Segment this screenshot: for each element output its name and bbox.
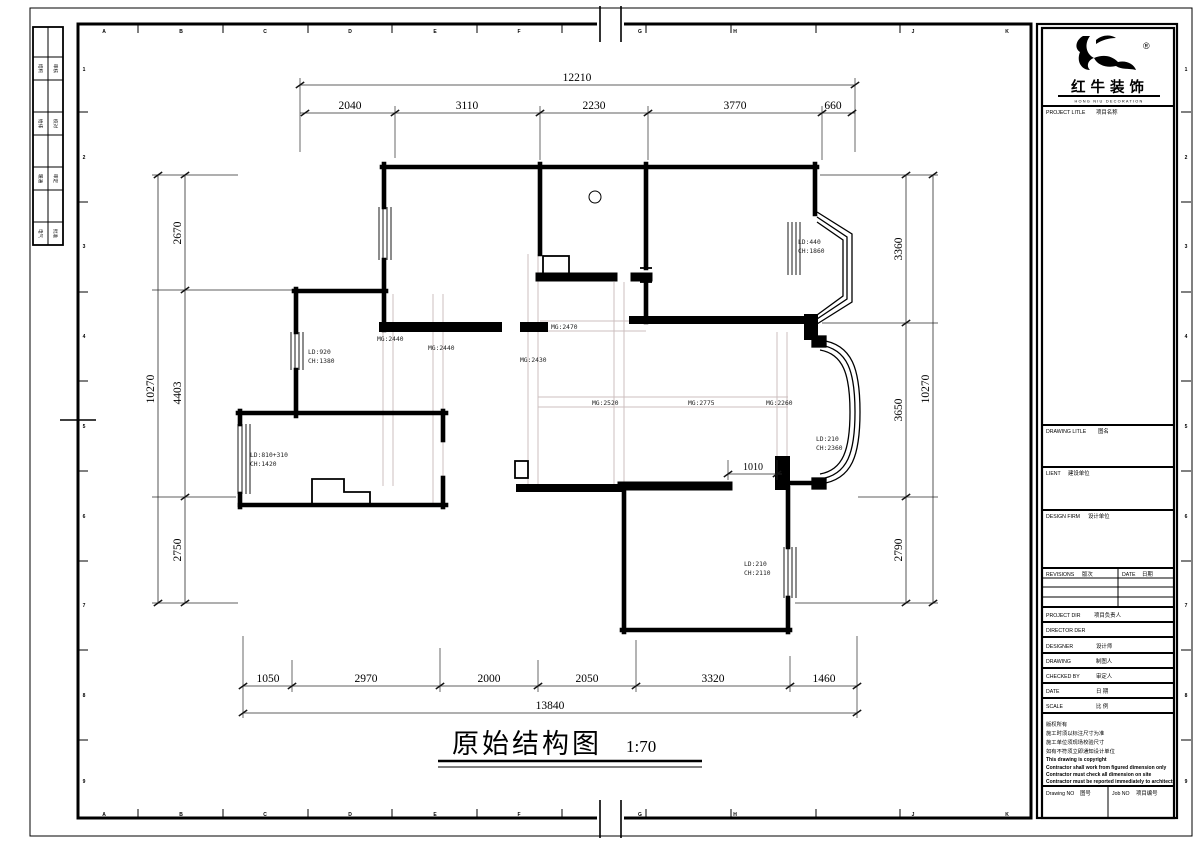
field-job-no-en: Job NO — [1112, 791, 1130, 797]
signoff-label: 结构 — [37, 64, 44, 74]
opening-label-ld: LD:440 — [798, 239, 821, 246]
dim-bottom-seg: 2050 — [576, 673, 599, 685]
dim-left-overall: 10270 — [145, 374, 157, 403]
dim-left-seg: 2750 — [172, 538, 184, 561]
dim-top-seg: 3770 — [724, 100, 747, 112]
dim-right-seg: 3650 — [893, 398, 905, 421]
signoff-label: 给排 — [37, 119, 44, 129]
beam-label: MG:2440 — [428, 345, 455, 352]
field-drawing-title-cn: 图名 — [1098, 427, 1109, 435]
beam-label: MG:2470 — [551, 324, 578, 331]
field-designer-cn: 设计师 — [1096, 642, 1113, 650]
dim-top-seg: 3110 — [456, 100, 479, 112]
grid-number-left: 7 — [83, 603, 86, 609]
field-client-en: LIENT — [1046, 471, 1062, 477]
dim-top-seg: 2040 — [339, 100, 362, 112]
grid-letter-bottom: B — [179, 812, 183, 818]
beam-label: MG:2520 — [592, 400, 619, 407]
field-design-firm-en: DESIGN FIRM — [1046, 514, 1080, 520]
field-date-col-cn: 日期 — [1142, 571, 1153, 578]
beam-label: MG:2260 — [766, 400, 793, 407]
field-project-title-cn: 项目名称 — [1096, 108, 1118, 116]
grid-letter-top: C — [263, 29, 267, 35]
field-project-title-en: PROJECT LITLE — [1046, 110, 1086, 116]
field-drawing-by-en: DRAWING — [1046, 659, 1071, 665]
dim-bottom-seg: 2970 — [355, 673, 378, 685]
opening-label-ch: CH:2360 — [816, 445, 843, 452]
opening-label-ld: LD:210 — [744, 561, 767, 568]
dim-bottom-seg: 1460 — [813, 673, 836, 685]
grid-letter-top: K — [1005, 29, 1009, 35]
opening-label-ld: LD:920 — [308, 349, 331, 356]
grid-letter-top: H — [733, 29, 737, 35]
registered-mark: ® — [1143, 41, 1150, 51]
grid-letter-bottom: K — [1005, 812, 1009, 818]
signoff-label: 校对 — [52, 119, 59, 129]
grid-letter-top: B — [179, 29, 183, 35]
field-date-en: DATE — [1046, 689, 1060, 695]
grid-letter-top: D — [348, 29, 352, 35]
dim-top-overall: 12210 — [563, 72, 592, 84]
grid-number-left: 8 — [83, 693, 86, 699]
dim-right-seg: 2790 — [893, 538, 905, 561]
dim-top-seg: 2230 — [583, 100, 606, 112]
opening-label-ch: CH:1420 — [250, 461, 277, 468]
field-client-cn: 建设单位 — [1068, 469, 1090, 477]
field-checked-by-cn: 审定人 — [1096, 672, 1113, 680]
field-drawing-no-en: Drawing NO — [1046, 791, 1074, 797]
note-line: 版权所有 — [1046, 720, 1067, 728]
grid-letter-top: J — [912, 29, 915, 35]
grid-number-right: 4 — [1185, 334, 1188, 340]
beam-label: MG:2430 — [520, 357, 547, 364]
note-line: Contractor shall work from figured dimen… — [1046, 765, 1167, 771]
paper — [0, 0, 1200, 844]
grid-letter-bottom: H — [733, 812, 737, 818]
opening-label-ch: CH:1380 — [308, 358, 335, 365]
dim-left-seg: 4403 — [172, 381, 184, 404]
grid-letter-top: F — [517, 29, 520, 35]
grid-number-left: 3 — [83, 244, 86, 250]
signoff-label: 电气 — [38, 229, 44, 239]
grid-number-right: 5 — [1185, 424, 1188, 430]
dim-top-seg: 660 — [824, 100, 842, 112]
grid-number-left: 6 — [83, 514, 86, 520]
dim-bottom-seg: 3320 — [702, 673, 725, 685]
field-drawing-title-en: DRAWING LITLE — [1046, 429, 1087, 435]
grid-letter-bottom: J — [912, 812, 915, 818]
grid-number-right: 1 — [1185, 67, 1188, 73]
note-line: 施工时须以标注尺寸为准 — [1046, 729, 1105, 737]
field-job-no-cn: 项目编号 — [1136, 789, 1158, 797]
dim-opening-1010: 1010 — [743, 462, 763, 473]
dim-bottom-seg: 1050 — [257, 673, 280, 685]
signoff-label: 批准 — [52, 229, 59, 239]
grid-number-right: 9 — [1185, 779, 1188, 785]
field-scale-en: SCALE — [1046, 704, 1064, 710]
grid-number-right: 6 — [1185, 514, 1188, 520]
note-line: 施工单位须现场校验尺寸 — [1046, 738, 1105, 746]
signoff-label: 审定 — [52, 174, 59, 184]
field-director-en: DIRECTOR DER — [1046, 628, 1086, 634]
note-line: 如有不符须立即通知设计单位 — [1046, 747, 1116, 755]
grid-number-left: 2 — [83, 155, 86, 161]
note-line: Contractor must be reported immediately … — [1046, 779, 1175, 785]
grid-number-right: 3 — [1185, 244, 1188, 250]
opening-label-ld: LD:810+310 — [250, 452, 288, 459]
note-line: Contractor must check all dimension on s… — [1046, 772, 1152, 778]
grid-number-right: 2 — [1185, 155, 1188, 161]
grid-letter-bottom: C — [263, 812, 267, 818]
dim-bottom-overall: 13840 — [536, 700, 565, 712]
field-project-dir-en: PROJECT DIR — [1046, 613, 1081, 619]
drawing-scale-text: 1:70 — [626, 737, 656, 756]
field-checked-by-en: CHECKED BY — [1046, 674, 1080, 680]
beam-label: MG:2440 — [377, 336, 404, 343]
field-drawing-by-cn: 制图人 — [1096, 657, 1113, 665]
brand-subtitle: HONG NIU DECORATION — [1075, 99, 1144, 104]
grid-number-left: 5 — [83, 424, 86, 430]
field-design-firm-cn: 设计单位 — [1088, 512, 1110, 520]
grid-letter-top: A — [102, 29, 106, 35]
field-revisions-en: REVISIONS — [1046, 572, 1075, 578]
grid-number-left: 9 — [83, 779, 86, 785]
opening-label-ld: LD:210 — [816, 436, 839, 443]
grid-letter-bottom: D — [348, 812, 352, 818]
field-scale-cn: 比 例 — [1096, 702, 1108, 710]
field-date-col-en: DATE — [1122, 572, 1136, 578]
field-project-dir-cn: 项目负责人 — [1094, 611, 1122, 619]
grid-letter-top: G — [638, 29, 642, 35]
dim-right-overall: 10270 — [920, 374, 932, 403]
drawing-title-text: 原始结构图 — [452, 729, 602, 759]
field-revisions-cn: 版次 — [1082, 570, 1093, 578]
signoff-label: 暖通 — [37, 174, 44, 184]
field-designer-en: DESIGNER — [1046, 644, 1073, 650]
opening-label-ch: CH:2110 — [744, 570, 771, 577]
grid-number-right: 7 — [1185, 603, 1188, 609]
signoff-label: 审核 — [52, 64, 59, 74]
drawing-sheet: A B C D E F G H J K A B C D E F G H J K … — [0, 0, 1200, 844]
note-line: This drawing is copyright — [1046, 757, 1107, 763]
opening-label-ch: CH:1860 — [798, 248, 825, 255]
grid-number-left: 4 — [83, 334, 86, 340]
dim-left-seg: 2670 — [172, 221, 184, 244]
dim-right-seg: 3360 — [893, 237, 905, 260]
grid-number-left: 1 — [83, 67, 86, 73]
grid-number-right: 8 — [1185, 693, 1188, 699]
field-drawing-no-cn: 图号 — [1080, 789, 1091, 797]
dim-bottom-seg: 2000 — [478, 673, 501, 685]
grid-letter-bottom: F — [517, 812, 520, 818]
grid-letter-bottom: A — [102, 812, 106, 818]
field-date-cn: 日 期 — [1096, 688, 1108, 695]
brand-name: 红牛装饰 — [1071, 78, 1149, 96]
beam-label: MG:2775 — [688, 400, 715, 407]
grid-letter-bottom: G — [638, 812, 642, 818]
